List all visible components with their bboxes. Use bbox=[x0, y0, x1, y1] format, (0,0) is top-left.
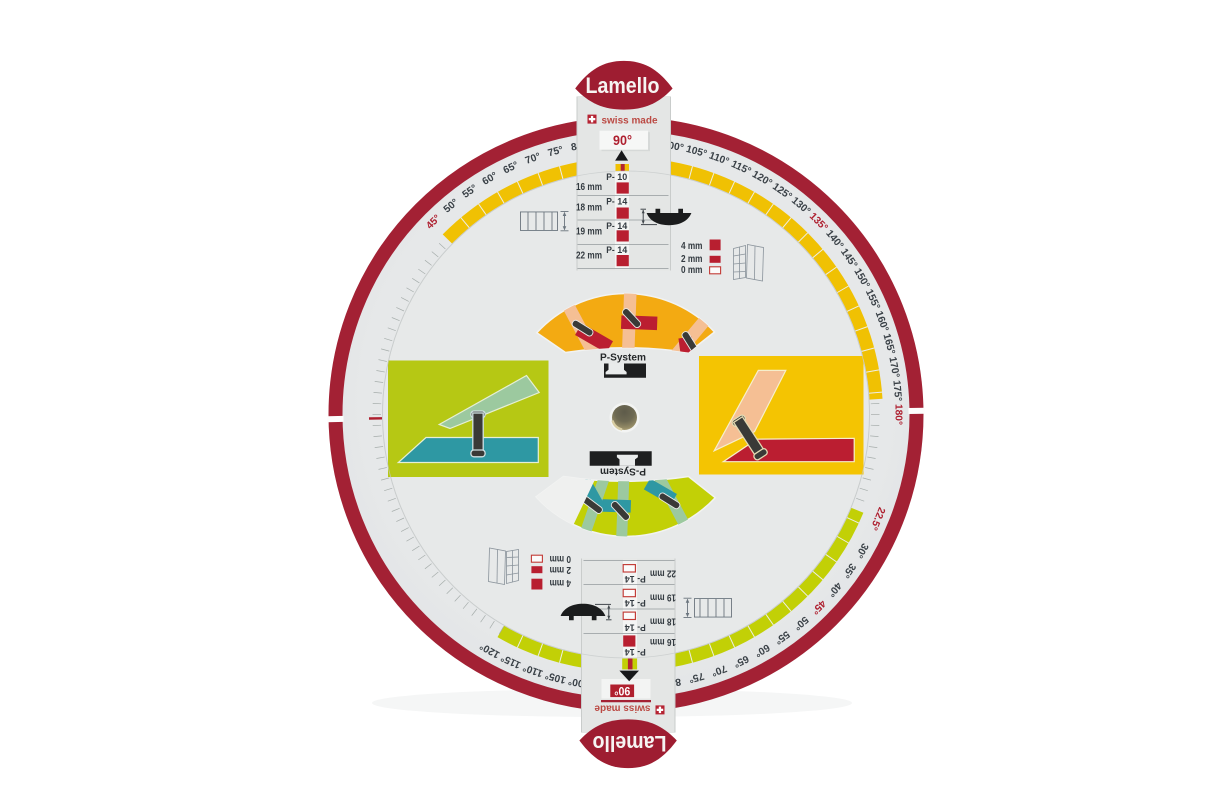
svg-text:14: 14 bbox=[617, 245, 627, 255]
svg-text:4 mm: 4 mm bbox=[549, 577, 571, 588]
svg-text:Lamello: Lamello bbox=[593, 731, 667, 756]
svg-text:swiss made: swiss made bbox=[594, 703, 650, 715]
svg-text:90°: 90° bbox=[614, 684, 630, 698]
svg-text:P-: P- bbox=[606, 221, 615, 231]
svg-text:18 mm: 18 mm bbox=[576, 202, 602, 214]
svg-text:P-: P- bbox=[637, 647, 646, 657]
svg-text:14: 14 bbox=[625, 574, 635, 584]
svg-text:19 mm: 19 mm bbox=[650, 591, 676, 603]
svg-text:22 mm: 22 mm bbox=[650, 568, 676, 580]
svg-text:2 mm: 2 mm bbox=[549, 564, 571, 575]
svg-text:P-System: P-System bbox=[600, 352, 646, 364]
svg-text:22 mm: 22 mm bbox=[576, 249, 602, 261]
svg-text:19 mm: 19 mm bbox=[576, 226, 602, 238]
svg-text:14: 14 bbox=[625, 622, 635, 632]
svg-text:P-System: P-System bbox=[600, 466, 646, 478]
svg-text:2 mm: 2 mm bbox=[681, 254, 703, 265]
svg-text:16 mm: 16 mm bbox=[650, 636, 676, 648]
svg-text:14: 14 bbox=[625, 598, 635, 608]
svg-text:P-: P- bbox=[637, 574, 646, 584]
svg-text:175°: 175° bbox=[890, 380, 903, 402]
svg-text:10: 10 bbox=[617, 172, 627, 182]
svg-text:0 mm: 0 mm bbox=[549, 553, 571, 564]
svg-text:P-: P- bbox=[606, 197, 615, 207]
svg-text:180°: 180° bbox=[892, 404, 903, 425]
svg-text:18 mm: 18 mm bbox=[650, 615, 676, 627]
svg-text:16 mm: 16 mm bbox=[576, 181, 602, 193]
svg-text:4 mm: 4 mm bbox=[681, 241, 703, 252]
svg-text:P-: P- bbox=[637, 622, 646, 632]
svg-text:P-: P- bbox=[606, 172, 615, 182]
svg-text:Lamello: Lamello bbox=[586, 73, 660, 98]
svg-text:14: 14 bbox=[617, 197, 627, 207]
svg-text:P-: P- bbox=[637, 598, 646, 608]
svg-text:14: 14 bbox=[617, 221, 627, 231]
svg-text:90°: 90° bbox=[613, 132, 632, 148]
svg-text:0 mm: 0 mm bbox=[681, 265, 703, 276]
svg-text:P-: P- bbox=[606, 245, 615, 255]
svg-text:14: 14 bbox=[625, 647, 635, 657]
svg-text:swiss made: swiss made bbox=[602, 114, 658, 126]
